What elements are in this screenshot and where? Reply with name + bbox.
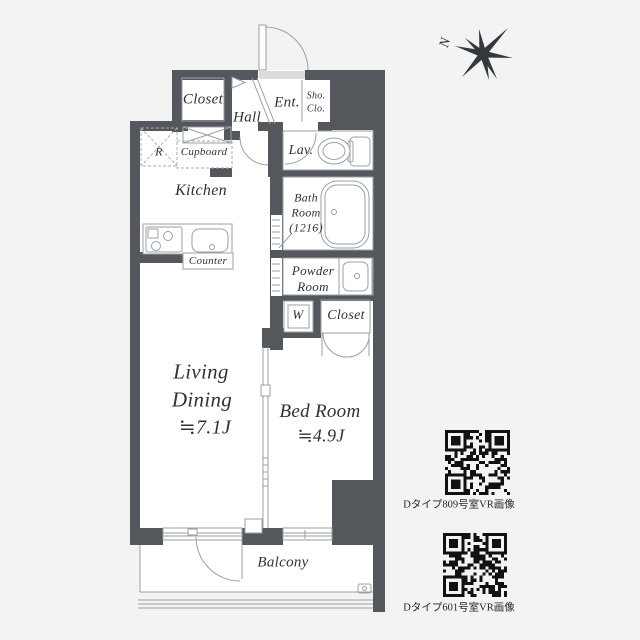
label-closet-bedroom: Closet — [327, 308, 365, 324]
qr-code-809[interactable] — [445, 430, 510, 495]
label-shoe-closet-1: Sho. — [307, 91, 326, 102]
label-bedroom: Bed Room — [279, 401, 360, 423]
qr-label-809: Dタイプ809号室VR画像 — [403, 497, 514, 512]
vanity-sink-icon — [339, 258, 372, 295]
label-counter: Counter — [189, 255, 227, 267]
label-kitchen: Kitchen — [175, 182, 227, 200]
floorplan-page: Closet Hall Ent. Sho. Clo. Lav. Kitchen … — [0, 0, 640, 640]
qr-code-601[interactable] — [443, 533, 507, 597]
label-bath-3: (1216) — [289, 221, 323, 236]
label-cupboard: Cupboard — [181, 146, 228, 158]
label-washer: W — [292, 307, 303, 323]
label-balcony: Balcony — [257, 555, 308, 572]
label-powder-2: Room — [297, 279, 329, 295]
label-living-1: Living — [173, 360, 228, 385]
label-powder-1: Powder — [292, 263, 334, 279]
label-lavatory: Lav. — [289, 143, 314, 159]
toilet-icon — [318, 137, 370, 166]
label-living-2: Dining — [172, 388, 232, 413]
label-bath-1: Bath — [294, 191, 318, 206]
label-closet-top: Closet — [183, 92, 223, 109]
label-bedroom-size: ≒4.9J — [297, 426, 344, 447]
label-refrigerator: R — [155, 145, 163, 160]
bathtub-icon — [321, 181, 369, 248]
label-bath-2: Room — [291, 206, 320, 221]
label-living-size: ≒7.1J — [179, 415, 231, 440]
label-hall: Hall — [233, 110, 261, 127]
qr-label-601: Dタイプ601号室VR画像 — [403, 600, 514, 615]
label-entrance: Ent. — [274, 95, 300, 112]
label-shoe-closet-2: Clo. — [307, 104, 325, 115]
compass-icon — [455, 28, 513, 80]
